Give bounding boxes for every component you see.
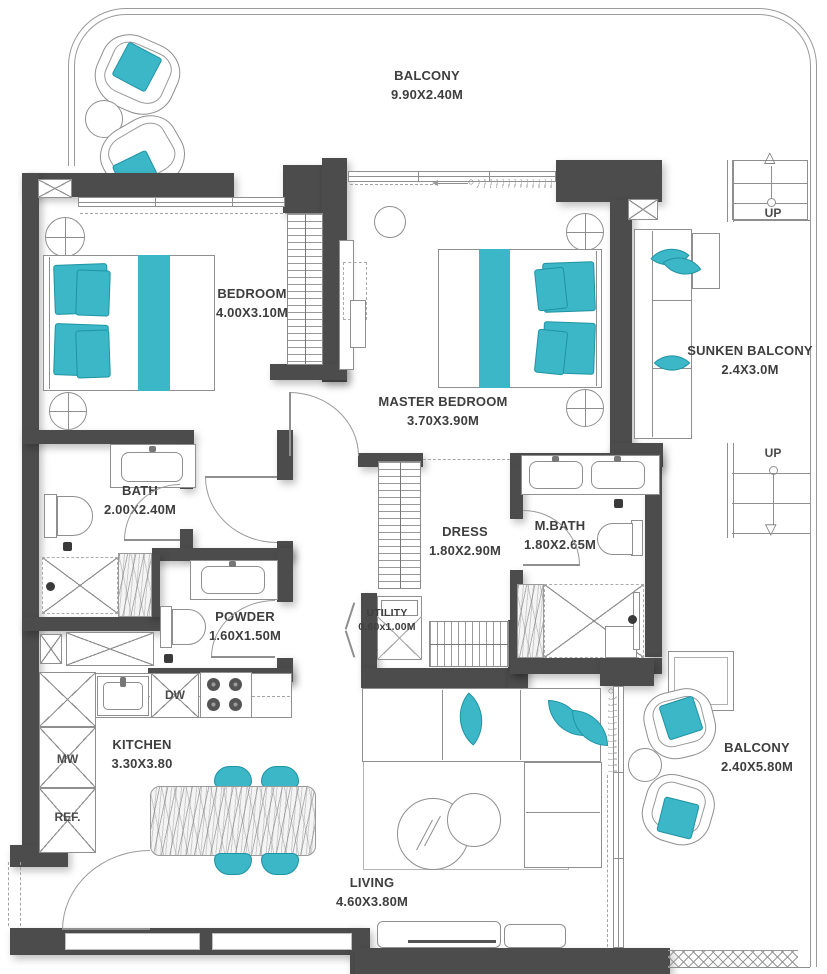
door-leaf — [523, 564, 580, 566]
dining-stool — [261, 766, 299, 788]
burner-icon — [229, 678, 242, 691]
room-name: UTILITY — [350, 606, 424, 620]
shower-head — [46, 582, 55, 591]
corridor-line — [727, 160, 728, 222]
dining-stool — [214, 766, 252, 788]
balcony-railing — [668, 950, 798, 967]
corridor-line — [733, 160, 734, 222]
room-label-sunken-balcony: SUNKEN BALCONY 2.4X3.0M — [650, 342, 827, 380]
bedside-table — [566, 389, 604, 427]
sofa-cushion-line — [526, 812, 600, 813]
stair-tread — [732, 473, 810, 474]
window-mullion — [613, 772, 624, 773]
arrow-down-icon: ▽ — [765, 522, 777, 537]
room-dims: 9.90X2.40M — [327, 86, 527, 105]
entry-door-leaf — [62, 928, 150, 930]
opening-dashed — [423, 459, 510, 460]
room-dims: 3.70X3.90M — [331, 412, 555, 431]
bifold-door — [345, 630, 356, 657]
window-mullion — [418, 171, 419, 182]
room-label-utility: UTILITY 0.60x1.00M — [350, 606, 424, 634]
faucet — [120, 677, 126, 687]
headboard-line — [49, 257, 50, 389]
dashed-line — [8, 862, 9, 926]
shower-marble-wall — [517, 584, 544, 658]
storage-cabinet — [66, 632, 154, 666]
toilet-tank — [160, 606, 172, 648]
balcony-railing-line — [668, 967, 810, 968]
wall — [355, 948, 670, 974]
stair-arrow-line — [771, 166, 772, 199]
mbath-sink — [529, 461, 583, 489]
bed-pillow — [534, 267, 568, 312]
column — [628, 199, 658, 220]
bed-pillow — [75, 269, 111, 316]
room-label-balcony-right: BALCONY 2.40X5.80M — [695, 739, 819, 777]
shoe-rack — [429, 621, 509, 667]
bedside-table — [566, 213, 604, 251]
window-mullion — [232, 197, 233, 207]
wardrobe — [287, 213, 323, 365]
sofa-extension — [692, 233, 720, 289]
burner-icon — [207, 698, 220, 711]
sofa-back-line — [652, 231, 653, 437]
shower-marble-wall — [118, 553, 152, 617]
room-label-balcony-top: BALCONY 9.90X2.40M — [327, 67, 527, 105]
corridor-line — [733, 443, 734, 538]
room-name: MASTER BEDROOM — [331, 393, 555, 412]
arrow-up-icon: △ — [764, 150, 776, 165]
stair-line — [733, 220, 810, 221]
dining-stool — [214, 853, 252, 875]
up-label-middle: UP — [756, 446, 790, 460]
burner-icon — [207, 678, 220, 691]
dashed-line — [607, 775, 608, 947]
window-mullion — [155, 197, 156, 207]
room-dims: 2.4X3.0M — [650, 361, 827, 380]
sofa-cushion-line — [652, 300, 692, 301]
dishwasher-label: DW — [151, 688, 199, 702]
faucet — [229, 561, 236, 567]
curtain-icon — [468, 179, 556, 188]
room-dims: 0.60x1.00M — [350, 620, 424, 634]
dining-table — [150, 786, 316, 856]
wall-fixture — [164, 654, 173, 663]
room-name: SUNKEN BALCONY — [650, 342, 827, 361]
room-name: BALCONY — [695, 739, 819, 758]
sofa-cushion-line — [520, 690, 521, 760]
mbath-sink — [591, 461, 645, 489]
room-label-living: LIVING 4.60X3.80M — [310, 874, 434, 912]
door-leaf — [205, 476, 277, 478]
wall — [270, 364, 347, 380]
wall-fixture — [614, 499, 623, 508]
window-mullion — [613, 858, 624, 859]
floor-plan: BALCONY 9.90X2.40M — [0, 0, 827, 974]
headboard-line — [596, 251, 597, 386]
wall — [283, 165, 325, 213]
storage-cabinet — [40, 634, 62, 664]
stove — [200, 672, 252, 718]
tv-screen — [408, 940, 496, 943]
bedside-table — [49, 392, 87, 430]
wall-niche — [65, 933, 200, 950]
bed-pillow — [534, 329, 568, 376]
bed-pillow — [75, 329, 111, 378]
door-arc — [205, 477, 277, 543]
side-unit — [504, 924, 566, 948]
stair-tread — [732, 533, 810, 534]
stair-tread — [732, 503, 810, 504]
dining-stool — [261, 853, 299, 875]
dashed-line — [20, 862, 21, 926]
bed-runner — [138, 255, 170, 391]
wall — [22, 173, 39, 855]
up-label-top: UP — [756, 206, 790, 220]
tv-unit-shelf — [350, 300, 366, 348]
faucet — [614, 456, 621, 462]
curtain-arrow — [438, 183, 468, 184]
room-name: BATH — [78, 482, 202, 501]
faucet — [552, 456, 559, 462]
bath-sink — [121, 452, 183, 482]
room-name: LIVING — [310, 874, 434, 893]
door-leaf — [289, 392, 291, 456]
refrigerator-label: REF. — [39, 810, 96, 824]
shower-head — [628, 615, 637, 624]
wall-fixture — [63, 542, 72, 551]
door-leaf — [211, 656, 275, 658]
faucet — [149, 446, 156, 452]
dashed-line — [80, 213, 288, 214]
wall — [361, 668, 511, 688]
stair-tread — [732, 183, 808, 184]
toilet-tank — [44, 494, 57, 538]
dashed-line — [350, 184, 438, 185]
room-label-kitchen: KITCHEN 3.30X3.80 — [80, 736, 204, 774]
door-leaf — [124, 539, 180, 541]
room-dims: 3.30X3.80 — [80, 755, 204, 774]
room-name: KITCHEN — [80, 736, 204, 755]
sofa-chaise — [524, 762, 602, 868]
room-dims: 4.60X3.80M — [310, 893, 434, 912]
wall — [22, 430, 194, 444]
column — [38, 179, 72, 198]
entry-door-arc — [62, 850, 150, 930]
burner-icon — [229, 698, 242, 711]
corridor-line — [727, 443, 728, 538]
room-dims: 2.40X5.80M — [695, 758, 819, 777]
curtain-icon — [608, 688, 617, 772]
wall — [277, 548, 293, 602]
wall — [610, 200, 632, 467]
window — [78, 197, 285, 207]
bed-runner — [479, 249, 510, 388]
arrow-left-icon — [432, 180, 438, 186]
room-label-master-bedroom: MASTER BEDROOM 3.70X3.90M — [331, 393, 555, 431]
wall — [600, 658, 654, 686]
coffee-table — [447, 793, 501, 847]
stair-arrow-line — [773, 475, 774, 525]
room-name: BALCONY — [327, 67, 527, 86]
wall-niche — [212, 933, 352, 950]
tv-console — [377, 921, 501, 948]
sofa-cushion-line — [442, 690, 443, 760]
powder-sink — [201, 566, 265, 594]
kitchen-cabinet — [39, 672, 96, 727]
wall — [556, 160, 662, 202]
plant — [374, 206, 406, 238]
bedside-table — [45, 217, 85, 257]
